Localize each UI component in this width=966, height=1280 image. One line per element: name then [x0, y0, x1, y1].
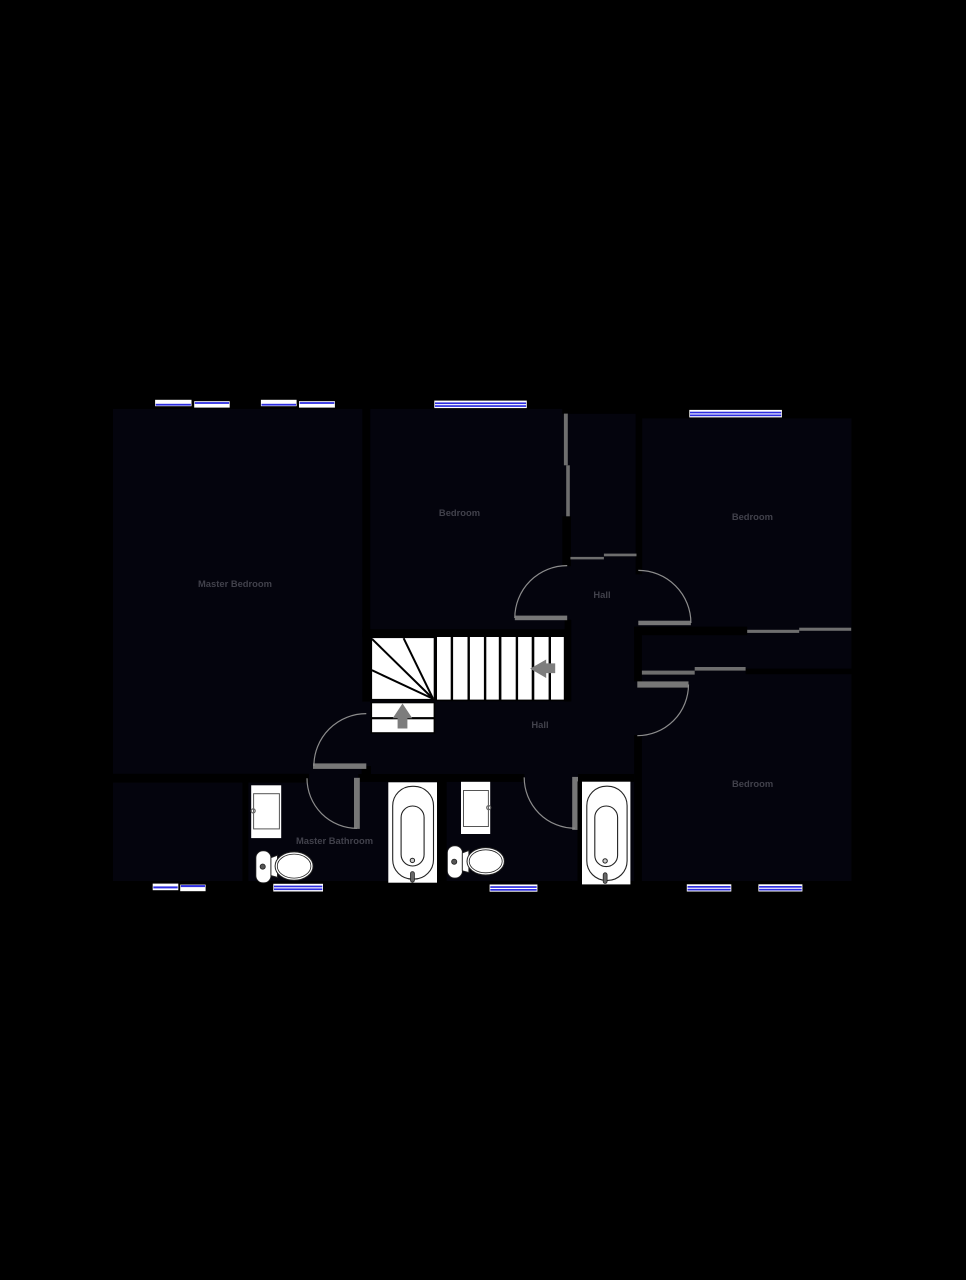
svg-text:Master Bathroom: Master Bathroom	[296, 835, 373, 846]
svg-text:Bedroom: Bedroom	[439, 507, 480, 518]
svg-text:Bedroom: Bedroom	[732, 778, 773, 789]
svg-text:Bedroom: Bedroom	[732, 511, 773, 522]
svg-text:Master Bedroom: Master Bedroom	[198, 578, 272, 589]
svg-text:Hall: Hall	[593, 589, 610, 600]
svg-text:Hall: Hall	[531, 719, 548, 730]
